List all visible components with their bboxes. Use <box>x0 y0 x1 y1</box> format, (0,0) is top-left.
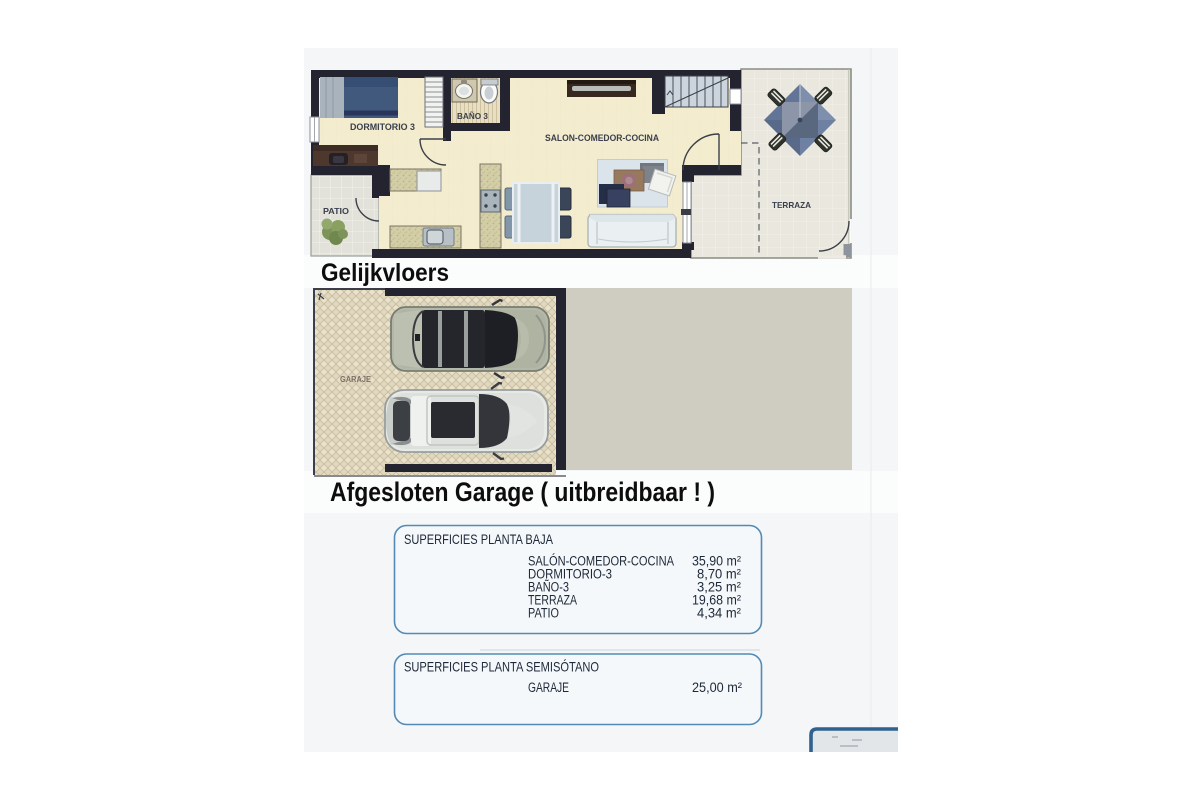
svg-text:PATIO: PATIO <box>528 606 559 621</box>
svg-text:SALON-COMEDOR-COCINA: SALON-COMEDOR-COCINA <box>545 133 659 144</box>
svg-text:SUPERFICIES PLANTA SEMISÓTANO: SUPERFICIES PLANTA SEMISÓTANO <box>404 659 599 675</box>
svg-text:GARAJE: GARAJE <box>340 375 372 384</box>
svg-text:BAÑO 3: BAÑO 3 <box>457 111 488 121</box>
svg-text:Afgesloten Garage ( uitbreidba: Afgesloten Garage ( uitbreidbaar ! ) <box>330 477 715 507</box>
svg-text:PATIO: PATIO <box>323 206 349 216</box>
svg-text:25,00 m²: 25,00 m² <box>692 680 742 695</box>
svg-text:Gelijkvloers: Gelijkvloers <box>321 259 449 287</box>
svg-text:DORMITORIO 3: DORMITORIO 3 <box>350 122 415 132</box>
svg-text:TERRAZA: TERRAZA <box>772 200 811 210</box>
svg-text:SUPERFICIES PLANTA BAJA: SUPERFICIES PLANTA BAJA <box>404 531 554 547</box>
svg-text:4,34 m²: 4,34 m² <box>697 606 741 621</box>
svg-text:GARAJE: GARAJE <box>528 680 569 695</box>
